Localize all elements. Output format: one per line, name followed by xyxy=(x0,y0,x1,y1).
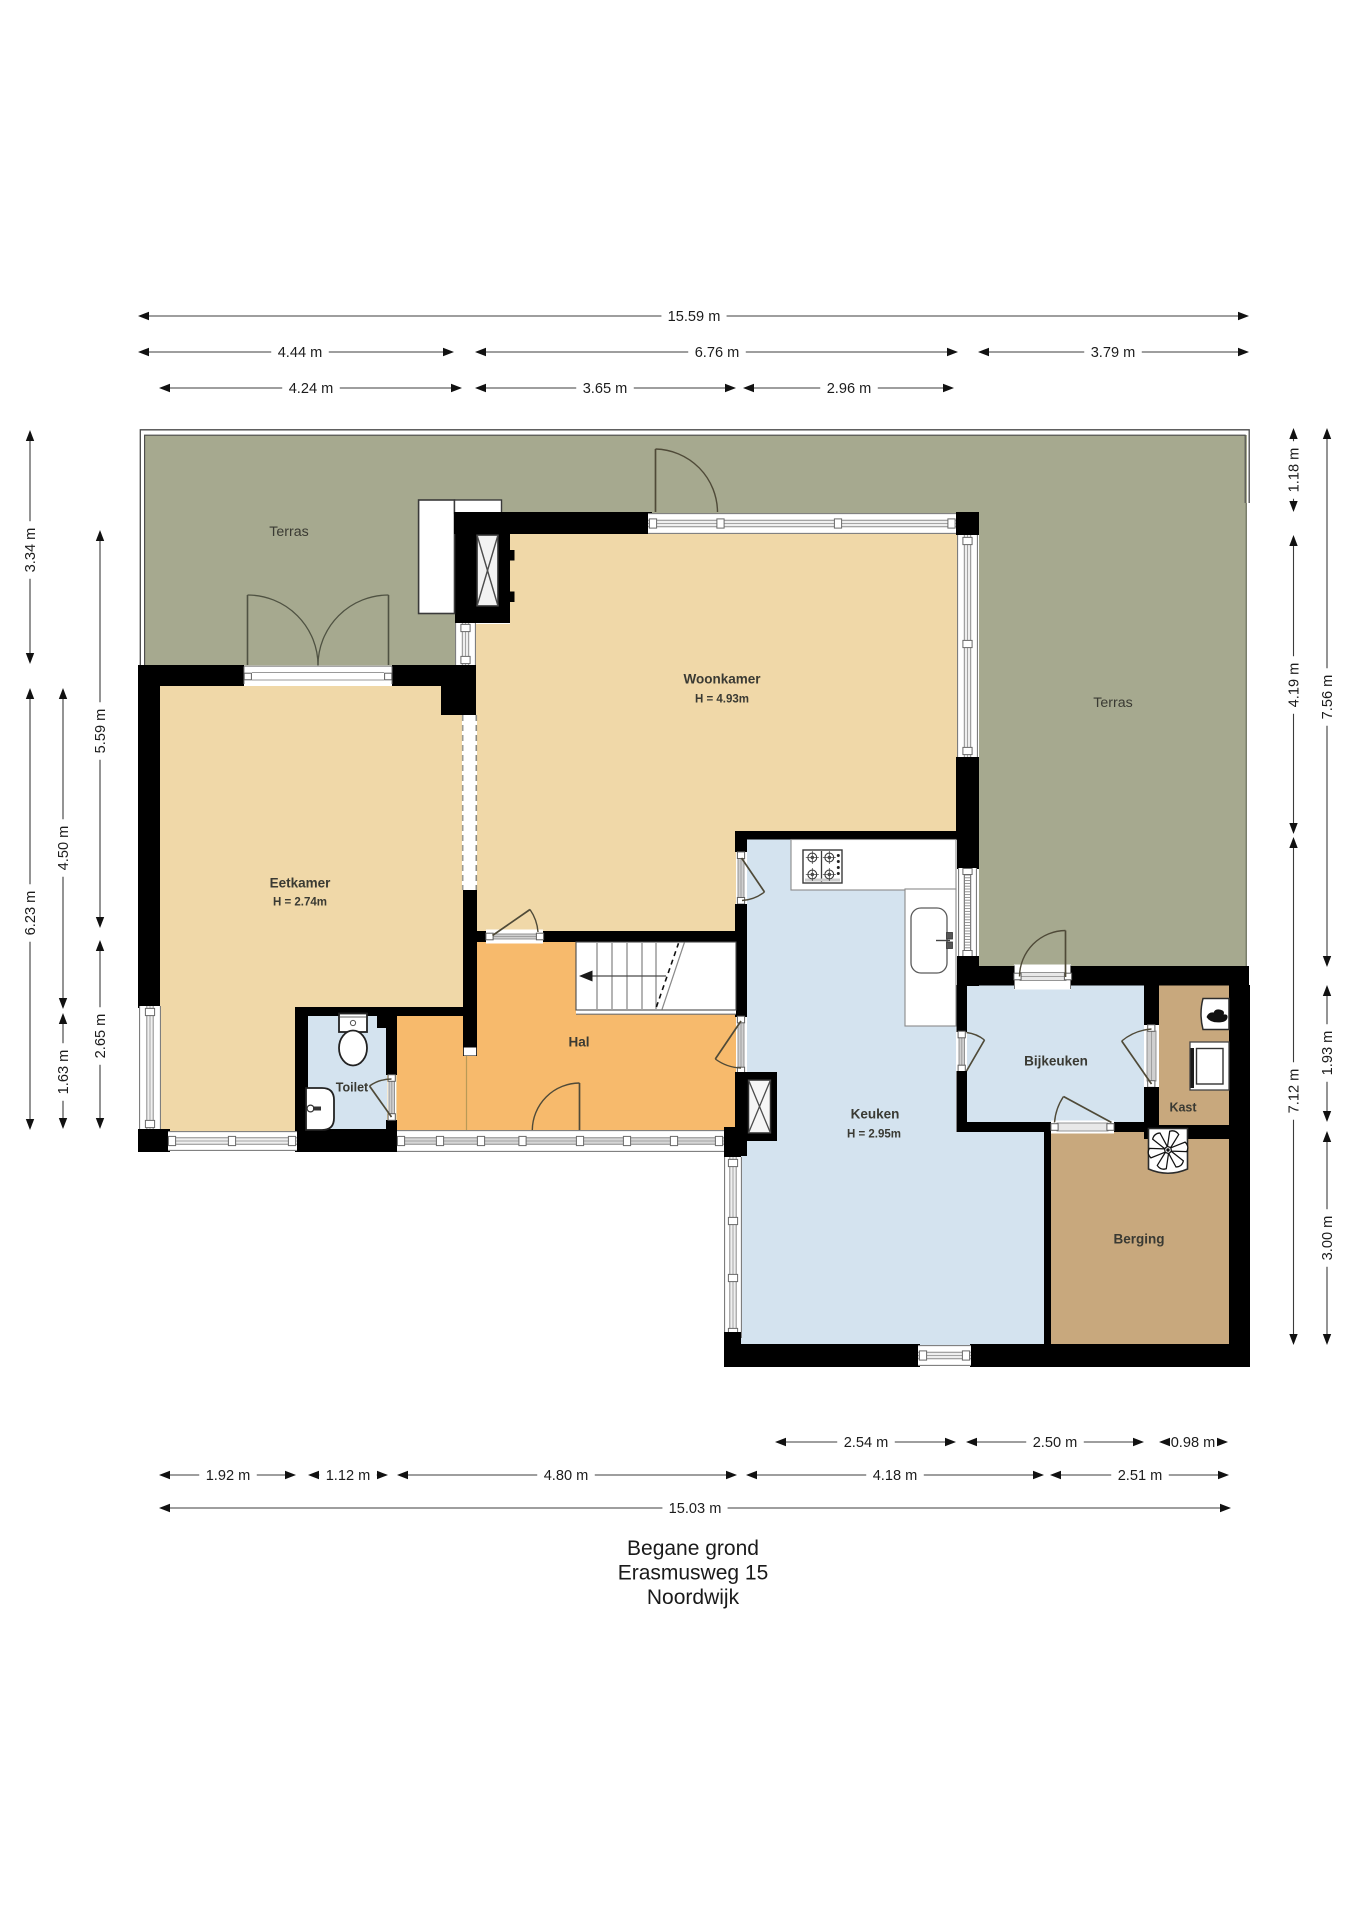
svg-text:Terras: Terras xyxy=(1093,695,1132,711)
svg-text:Erasmusweg 15: Erasmusweg 15 xyxy=(618,1562,769,1585)
svg-text:4.44 m: 4.44 m xyxy=(278,345,323,361)
svg-text:Woonkamer: Woonkamer xyxy=(683,672,761,687)
svg-text:3.34 m: 3.34 m xyxy=(23,528,39,573)
svg-text:2.96 m: 2.96 m xyxy=(827,381,872,397)
svg-text:4.80 m: 4.80 m xyxy=(544,1468,589,1484)
svg-text:2.65 m: 2.65 m xyxy=(93,1014,109,1059)
svg-text:H = 2.95m: H = 2.95m xyxy=(847,1128,901,1140)
svg-text:Bijkeuken: Bijkeuken xyxy=(1024,1054,1088,1069)
svg-text:2.54 m: 2.54 m xyxy=(844,1435,889,1451)
svg-text:Kast: Kast xyxy=(1169,1101,1197,1115)
svg-text:2.51 m: 2.51 m xyxy=(1118,1468,1163,1484)
svg-text:Noordwijk: Noordwijk xyxy=(647,1586,740,1609)
svg-text:Eetkamer: Eetkamer xyxy=(270,876,332,891)
svg-text:15.03 m: 15.03 m xyxy=(669,1501,722,1517)
svg-text:Berging: Berging xyxy=(1113,1232,1164,1247)
svg-text:7.12 m: 7.12 m xyxy=(1287,1069,1303,1114)
svg-text:4.19 m: 4.19 m xyxy=(1287,663,1303,708)
svg-text:3.65 m: 3.65 m xyxy=(583,381,628,397)
svg-text:15.59 m: 15.59 m xyxy=(668,309,721,325)
svg-text:4.24 m: 4.24 m xyxy=(289,381,334,397)
svg-text:Begane grond: Begane grond xyxy=(627,1537,759,1560)
svg-text:7.56 m: 7.56 m xyxy=(1320,675,1336,720)
svg-text:1.63 m: 1.63 m xyxy=(56,1050,72,1095)
svg-text:H = 4.93m: H = 4.93m xyxy=(695,694,749,706)
svg-text:5.59 m: 5.59 m xyxy=(93,709,109,754)
svg-text:6.76 m: 6.76 m xyxy=(695,345,740,361)
svg-text:3.79 m: 3.79 m xyxy=(1091,345,1136,361)
svg-text:1.92 m: 1.92 m xyxy=(206,1468,251,1484)
svg-text:4.18 m: 4.18 m xyxy=(873,1468,918,1484)
svg-text:2.50 m: 2.50 m xyxy=(1033,1435,1078,1451)
svg-text:Keuken: Keuken xyxy=(851,1107,900,1122)
svg-text:Toilet: Toilet xyxy=(336,1081,369,1095)
svg-text:H = 2.74m: H = 2.74m xyxy=(273,897,327,909)
svg-text:Hal: Hal xyxy=(568,1035,589,1050)
svg-text:4.50 m: 4.50 m xyxy=(56,826,72,871)
svg-text:1.18 m: 1.18 m xyxy=(1287,448,1303,493)
svg-text:6.23 m: 6.23 m xyxy=(23,891,39,936)
svg-text:1.93 m: 1.93 m xyxy=(1320,1031,1336,1076)
svg-text:Terras: Terras xyxy=(269,524,308,540)
svg-text:0.98 m: 0.98 m xyxy=(1171,1435,1216,1451)
svg-text:1.12 m: 1.12 m xyxy=(326,1468,371,1484)
svg-text:3.00 m: 3.00 m xyxy=(1320,1216,1336,1261)
